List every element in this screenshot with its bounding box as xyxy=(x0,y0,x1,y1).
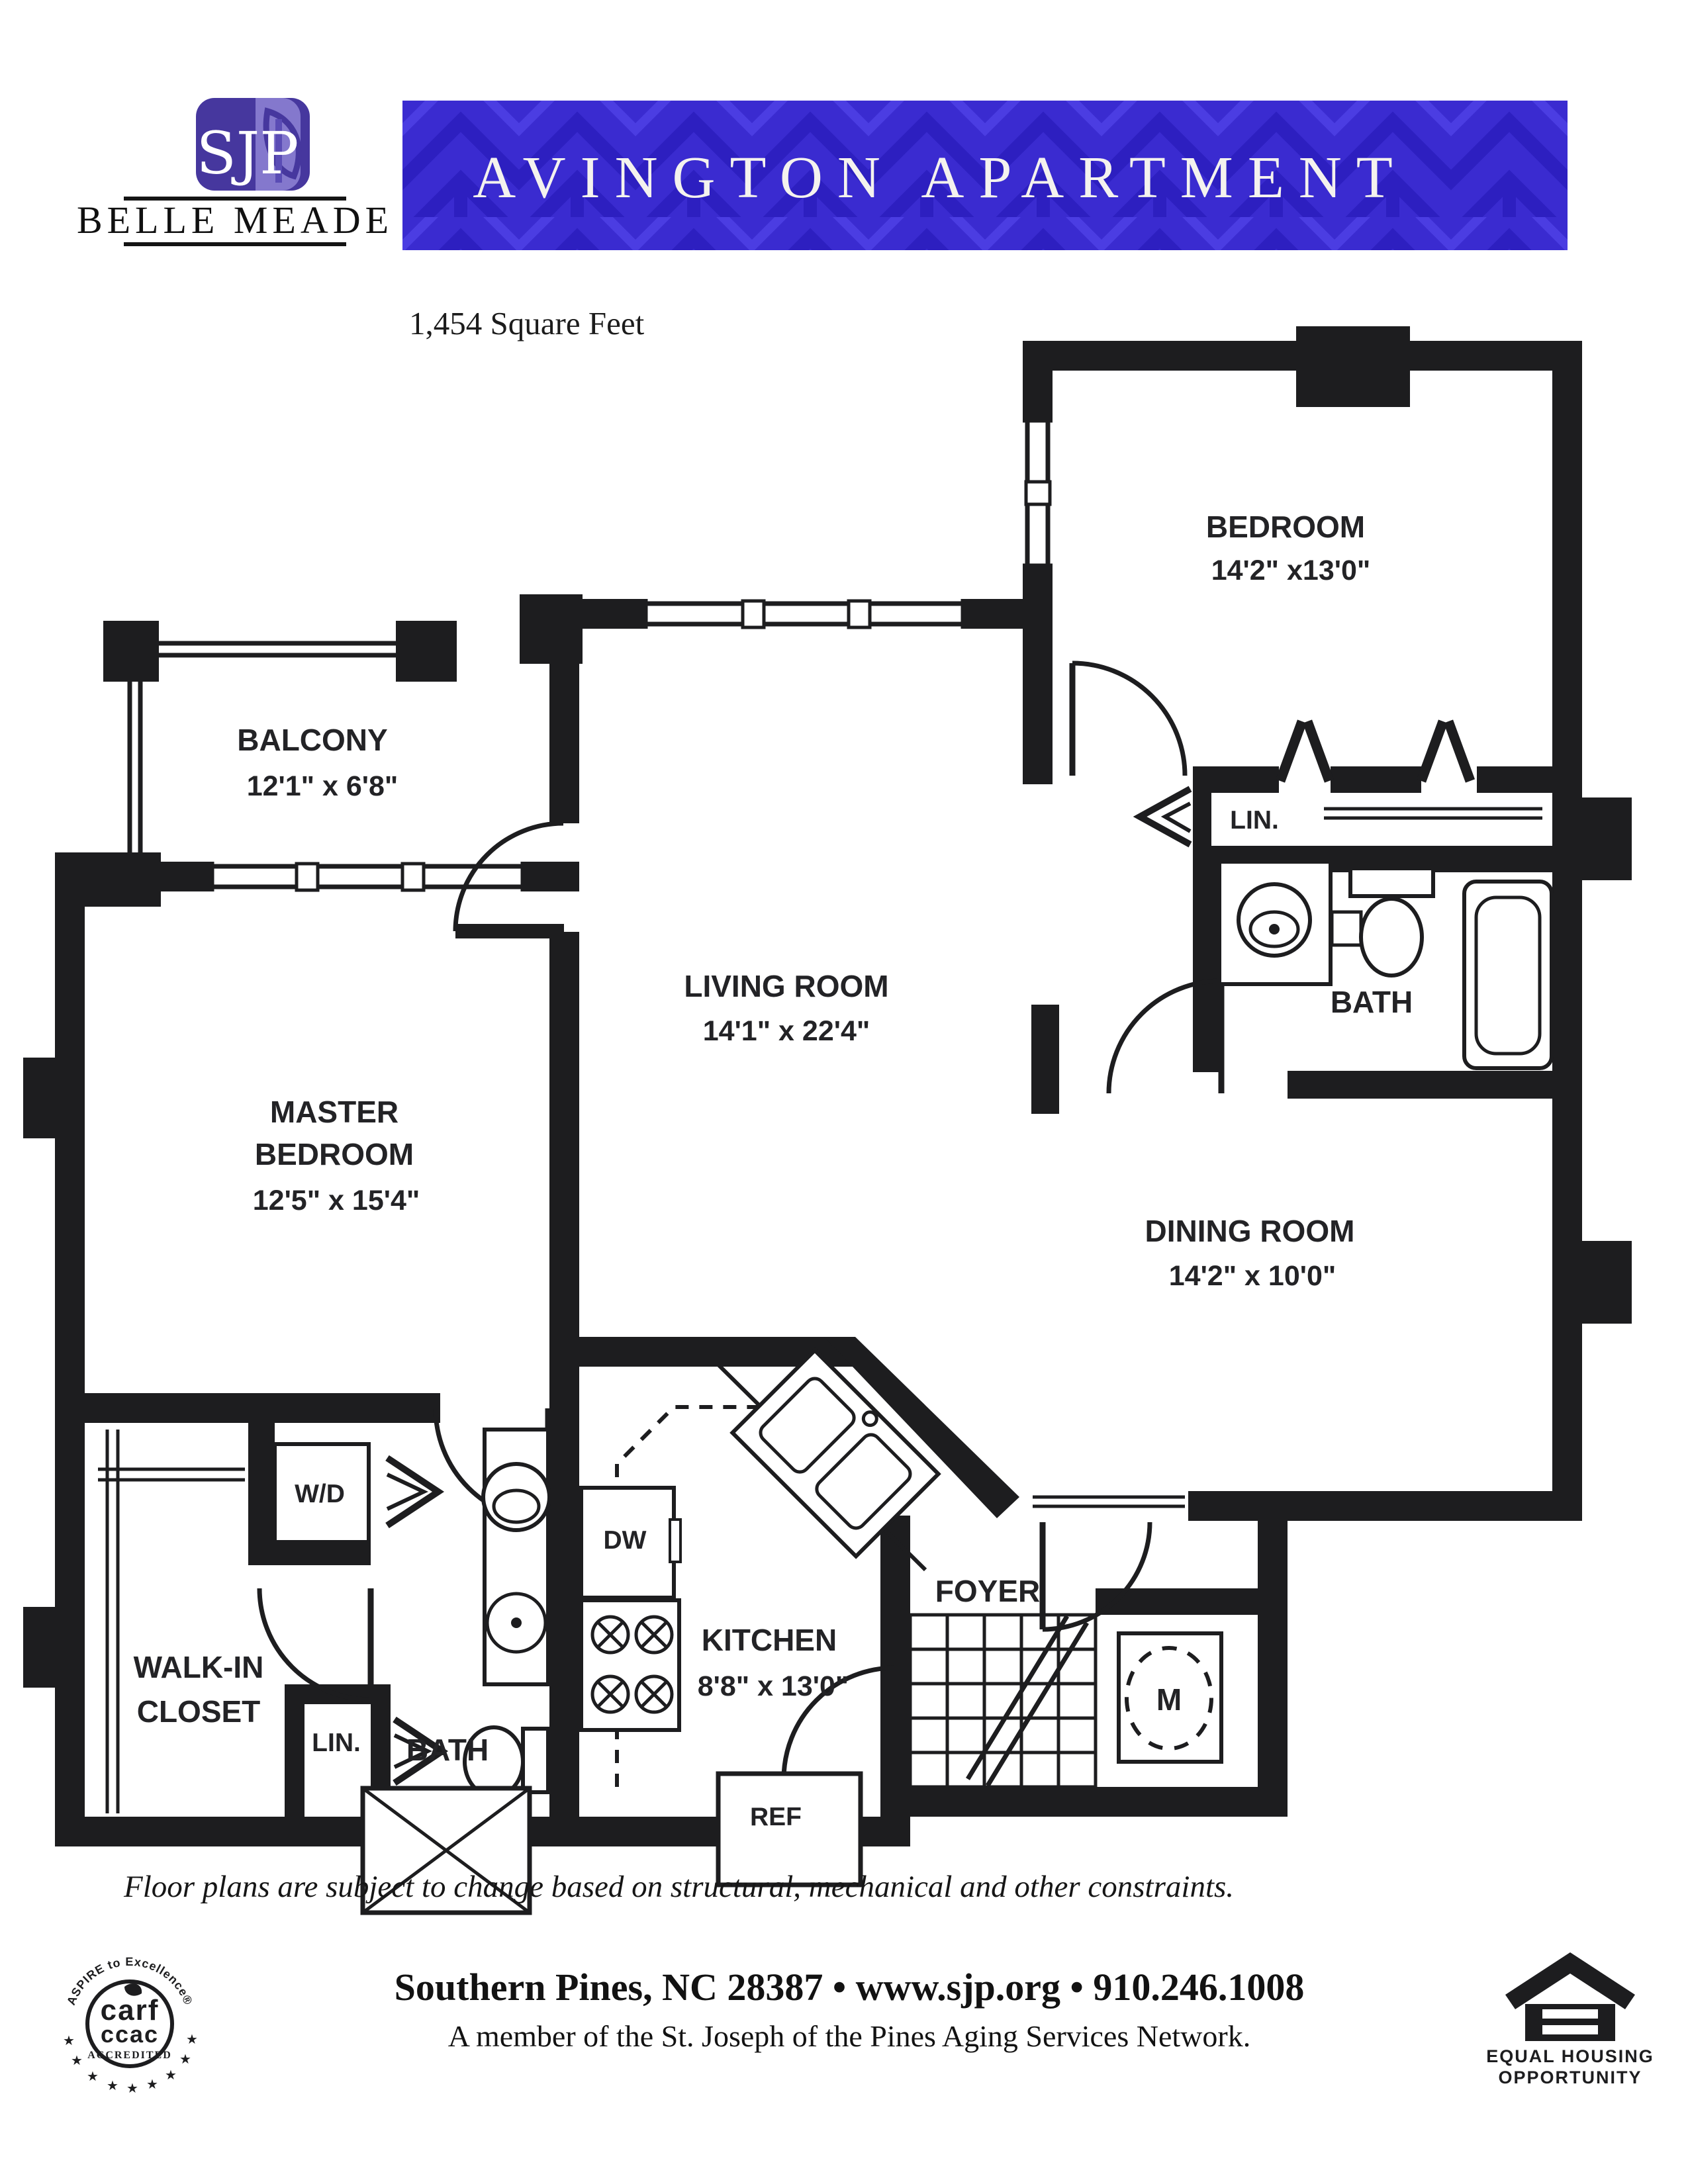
title-banner: AVINGTON APARTMENT xyxy=(402,101,1568,250)
svg-text:★: ★ xyxy=(165,2067,177,2083)
disclaimer-text: Floor plans are subject to change based … xyxy=(123,1870,1234,1904)
entry-threshold xyxy=(1033,1497,1185,1506)
toilet-icon xyxy=(1350,868,1433,976)
room-label-foyer: FOYER xyxy=(935,1574,1040,1608)
room-label-master-2: BEDROOM xyxy=(255,1137,414,1171)
room-dims-balcony: 12'1" x 6'8" xyxy=(247,770,399,802)
label-refrigerator: REF xyxy=(750,1803,802,1831)
room-label-walkin-1: WALK-IN xyxy=(134,1650,264,1684)
floorplan-page: SJP BELLE MEADE AVINGTON APARTMENT 1,454… xyxy=(0,0,1688,2184)
carf-ccac-seal-icon: ASPIRE to Excellence® carf ccac ACCREDIT… xyxy=(63,1955,198,2096)
brand-rule-bottom xyxy=(124,242,346,246)
ccac-word: ccac xyxy=(101,2021,159,2048)
room-label-master-1: MASTER xyxy=(270,1095,399,1129)
closet-rod xyxy=(1324,809,1542,818)
svg-text:★: ★ xyxy=(71,2052,83,2068)
room-label-balcony: BALCONY xyxy=(237,723,387,757)
stove-icon xyxy=(581,1600,679,1730)
footer: Floor plans are subject to change based … xyxy=(63,1870,1654,2096)
svg-text:★: ★ xyxy=(107,2077,118,2093)
room-dims-kitchen: 8'8" x 13'0" xyxy=(698,1670,849,1702)
eho-line-2: OPPORTUNITY xyxy=(1498,2068,1642,2087)
square-footage: 1,454 Square Feet xyxy=(409,305,645,341)
lin-upper-door-chevron xyxy=(1140,789,1190,844)
label-dishwasher: DW xyxy=(604,1526,647,1555)
closet-rods xyxy=(98,1430,245,1813)
room-label-walkin-2: CLOSET xyxy=(137,1694,261,1729)
svg-text:★: ★ xyxy=(146,2076,158,2092)
walk-in-closet-door xyxy=(259,1588,371,1700)
svg-text:★: ★ xyxy=(186,2031,198,2047)
room-label-bath-upper: BATH xyxy=(1331,985,1413,1019)
svg-text:★: ★ xyxy=(87,2068,99,2084)
label-lin-lower: LIN. xyxy=(312,1729,361,1757)
accredited-word: ACCREDITED xyxy=(87,2050,172,2061)
membership-line: A member of the St. Joseph of the Pines … xyxy=(448,2019,1250,2053)
bedroom-window xyxy=(1023,420,1053,566)
label-mechanical: M xyxy=(1156,1682,1182,1717)
banner-title: AVINGTON APARTMENT xyxy=(473,145,1407,210)
room-label-living-room: LIVING ROOM xyxy=(684,969,888,1003)
room-label-bath-lower: BATH xyxy=(406,1733,489,1767)
brand-name: BELLE MEADE xyxy=(77,199,393,242)
sjp-logo: SJP xyxy=(196,98,310,191)
eho-line-1: EQUAL HOUSING xyxy=(1486,2046,1654,2066)
svg-text:★: ★ xyxy=(63,2032,75,2048)
living-room-window xyxy=(645,599,963,629)
room-dims-bedroom: 14'2" x13'0" xyxy=(1211,555,1371,586)
wd-door-chevron xyxy=(387,1458,438,1525)
bedroom-door xyxy=(1072,663,1185,776)
room-label-bedroom: BEDROOM xyxy=(1206,510,1365,544)
sjp-logo-text: SJP xyxy=(197,119,299,187)
room-label-dining-room: DINING ROOM xyxy=(1145,1214,1355,1248)
floor-plan: BEDROOM 14'2" x13'0" BALCONY 12'1" x 6'8… xyxy=(23,326,1632,1913)
room-label-kitchen: KITCHEN xyxy=(702,1623,837,1657)
room-dims-master: 12'5" x 15'4" xyxy=(253,1185,420,1216)
equal-housing-logo-icon: EQUAL HOUSING OPPORTUNITY xyxy=(1486,1952,1654,2087)
bathtub-icon xyxy=(1464,882,1552,1068)
room-dims-living-room: 14'1" x 22'4" xyxy=(703,1015,870,1047)
label-washer-dryer: W/D xyxy=(295,1480,345,1508)
header: SJP BELLE MEADE AVINGTON APARTMENT 1,454… xyxy=(77,98,1568,341)
room-dims-dining-room: 14'2" x 10'0" xyxy=(1169,1260,1336,1292)
fixture-box xyxy=(1332,912,1361,945)
svg-text:★: ★ xyxy=(126,2080,138,2096)
svg-text:★: ★ xyxy=(179,2051,191,2067)
contact-line: Southern Pines, NC 28387 • www.sjp.org •… xyxy=(395,1966,1305,2009)
label-lin-upper: LIN. xyxy=(1230,806,1279,835)
